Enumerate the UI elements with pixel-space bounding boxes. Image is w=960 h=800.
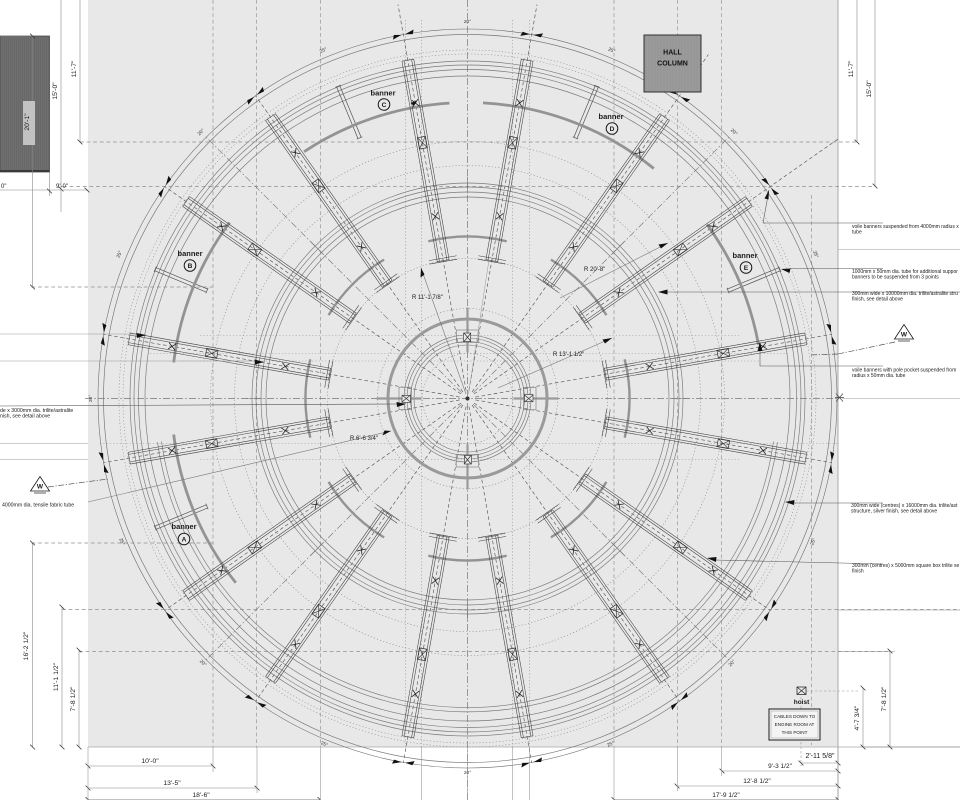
- svg-text:W: W: [901, 332, 908, 339]
- svg-text:B: B: [188, 263, 193, 270]
- svg-text:11'-7": 11'-7": [848, 60, 855, 77]
- svg-text:nish, see detail above: nish, see detail above: [0, 414, 50, 420]
- svg-text:THIS POINT: THIS POINT: [782, 730, 808, 735]
- svg-text:11'-7": 11'-7": [71, 60, 78, 77]
- svg-text:12'-8 1/2": 12'-8 1/2": [743, 778, 771, 785]
- svg-text:4000mm dia. tensile fabric tub: 4000mm dia. tensile fabric tube: [2, 503, 74, 509]
- svg-text:7'-8 1/2": 7'-8 1/2": [881, 686, 888, 711]
- svg-text:finish, see detail above: finish, see detail above: [852, 297, 903, 303]
- svg-text:9'-0": 9'-0": [56, 184, 68, 190]
- svg-text:9'-3 1/2": 9'-3 1/2": [768, 763, 792, 770]
- svg-text:radius x 50mm dia. tube: radius x 50mm dia. tube: [852, 373, 906, 379]
- svg-text:D: D: [610, 126, 615, 133]
- svg-text:banner: banner: [370, 89, 395, 98]
- svg-text:HALL: HALL: [663, 50, 682, 57]
- svg-text:20°: 20°: [464, 19, 471, 25]
- svg-text:4'-7 3/4": 4'-7 3/4": [854, 705, 861, 730]
- svg-text:structure, silver finish, see: structure, silver finish, see detail abo…: [851, 509, 937, 515]
- svg-text:R 20'-8": R 20'-8": [584, 267, 605, 273]
- svg-text:13'-5": 13'-5": [163, 780, 181, 787]
- svg-text:18'-6": 18'-6": [192, 792, 210, 799]
- svg-text:7'-8 1/2": 7'-8 1/2": [70, 686, 77, 711]
- svg-text:R 6'-6 3/4": R 6'-6 3/4": [350, 436, 378, 442]
- svg-text:A: A: [182, 537, 187, 544]
- svg-text:300mm (centres) x 5000mm squar: 300mm (centres) x 5000mm square box tril…: [852, 563, 959, 569]
- svg-text:hoist: hoist: [794, 699, 810, 706]
- svg-text:tube: tube: [852, 230, 862, 236]
- svg-text:15'-0": 15'-0": [866, 80, 873, 98]
- svg-text:10'-0": 10'-0": [141, 758, 159, 765]
- svg-text:15'-0": 15'-0": [52, 82, 59, 100]
- svg-text:CABLES DOWN TO: CABLES DOWN TO: [774, 714, 816, 719]
- svg-text:20'-1": 20'-1": [24, 113, 31, 131]
- svg-text:W: W: [37, 484, 44, 491]
- svg-text:2'-11 5/8": 2'-11 5/8": [806, 753, 836, 760]
- svg-text:finish: finish: [852, 569, 864, 575]
- svg-text:banner: banner: [177, 249, 202, 258]
- svg-text:E: E: [744, 265, 749, 272]
- svg-text:banner: banner: [598, 112, 623, 121]
- svg-text:11'-1 1/2": 11'-1 1/2": [53, 662, 60, 691]
- svg-text:20°: 20°: [88, 395, 94, 402]
- svg-text:C: C: [382, 102, 387, 109]
- svg-text:banner: banner: [732, 251, 757, 260]
- svg-text:banner: banner: [171, 522, 196, 531]
- svg-text:16'-2 1/2": 16'-2 1/2": [23, 631, 30, 660]
- svg-text:banners to be suspended from 3: banners to be suspended from 3 points: [852, 275, 939, 281]
- svg-text:0": 0": [1, 184, 6, 190]
- svg-text:ENGINE ROOM AT: ENGINE ROOM AT: [775, 722, 815, 727]
- svg-text:R 13'-1 1/2": R 13'-1 1/2": [553, 352, 584, 358]
- svg-text:voile banners suspended from 4: voile banners suspended from 4000mm radi…: [852, 224, 959, 230]
- svg-text:COLUMN: COLUMN: [657, 61, 688, 68]
- svg-text:R 11'-1 7/8": R 11'-1 7/8": [412, 295, 443, 301]
- svg-text:17'-9 1/2": 17'-9 1/2": [712, 792, 740, 799]
